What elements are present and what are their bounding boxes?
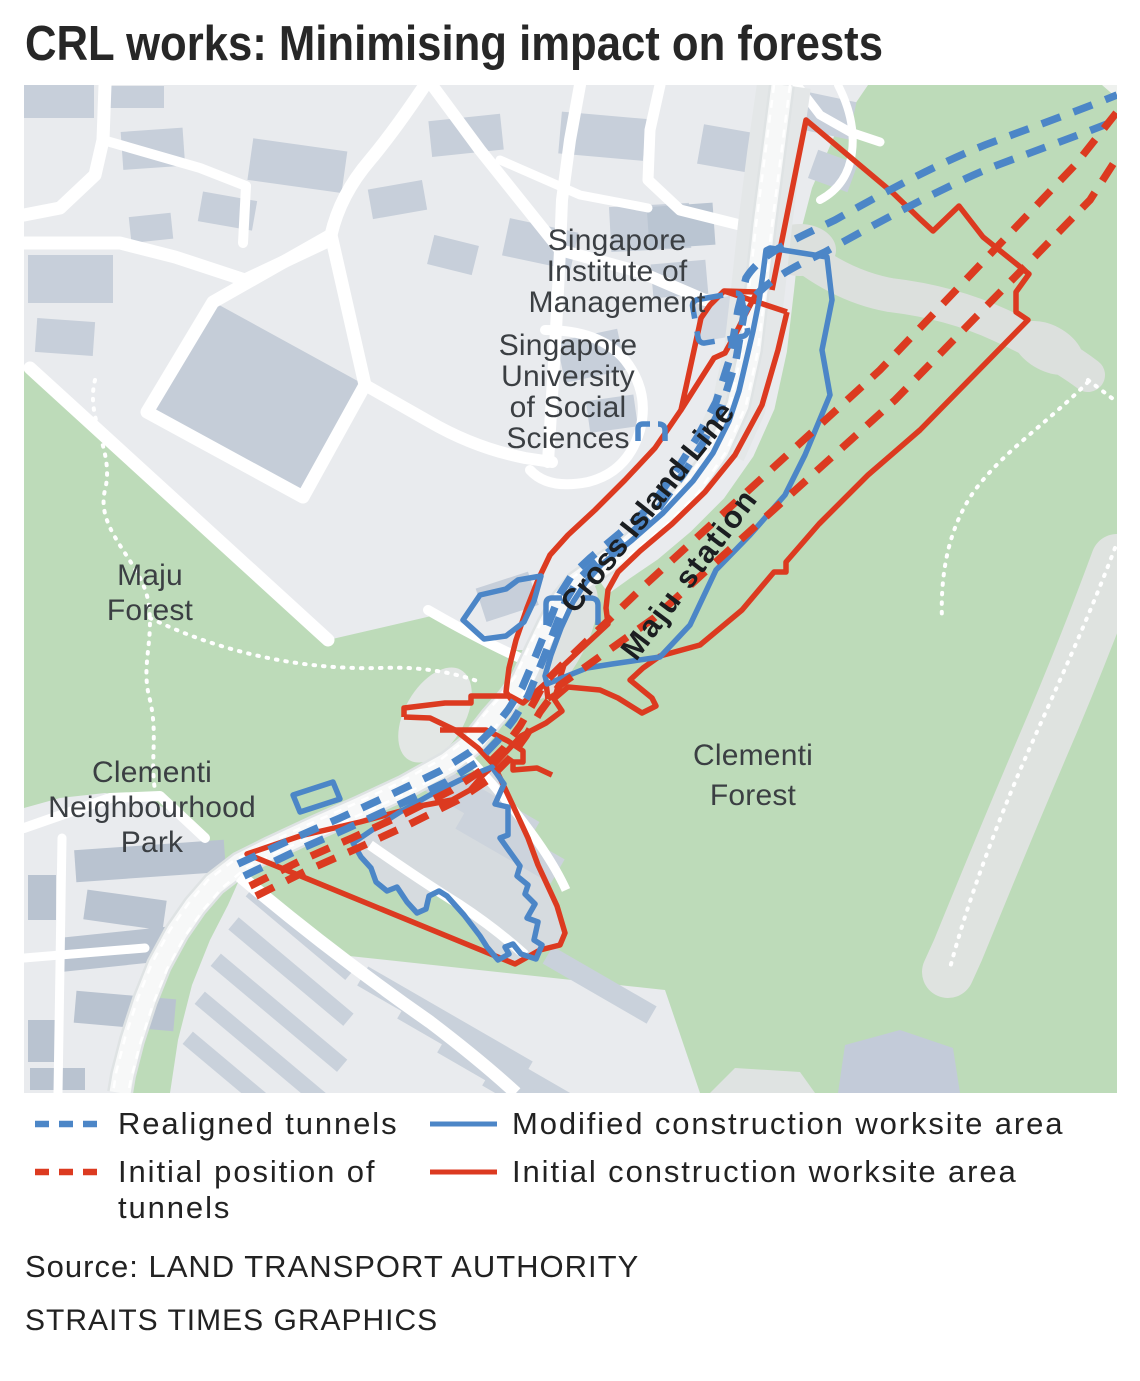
svg-text:Clementi: Clementi bbox=[693, 739, 813, 772]
svg-text:Maju: Maju bbox=[117, 559, 183, 592]
svg-text:Park: Park bbox=[121, 826, 184, 859]
svg-text:University: University bbox=[501, 360, 635, 393]
svg-text:Sciences: Sciences bbox=[506, 422, 629, 455]
svg-text:tunnels: tunnels bbox=[118, 1190, 231, 1225]
svg-text:Realigned tunnels: Realigned tunnels bbox=[118, 1106, 398, 1141]
svg-text:Institute of: Institute of bbox=[547, 255, 688, 288]
svg-text:Initial construction worksite: Initial construction worksite area bbox=[512, 1154, 1018, 1189]
svg-text:Forest: Forest bbox=[107, 594, 194, 627]
svg-text:Modified construction worksite: Modified construction worksite area bbox=[512, 1106, 1064, 1141]
svg-text:STRAITS TIMES GRAPHICS: STRAITS TIMES GRAPHICS bbox=[25, 1304, 438, 1337]
svg-text:Management: Management bbox=[528, 286, 706, 319]
svg-text:Initial position of: Initial position of bbox=[118, 1154, 376, 1189]
svg-text:Source: LAND TRANSPORT AUTHORI: Source: LAND TRANSPORT AUTHORITY bbox=[25, 1249, 639, 1284]
svg-text:Clementi: Clementi bbox=[92, 756, 212, 789]
svg-text:Singapore: Singapore bbox=[548, 224, 687, 257]
svg-text:Singapore: Singapore bbox=[499, 329, 638, 362]
svg-text:CRL works: Minimising impact o: CRL works: Minimising impact on forests bbox=[25, 17, 883, 71]
svg-text:Forest: Forest bbox=[710, 779, 797, 812]
svg-text:Neighbourhood: Neighbourhood bbox=[48, 791, 256, 824]
svg-text:of Social: of Social bbox=[510, 391, 627, 424]
